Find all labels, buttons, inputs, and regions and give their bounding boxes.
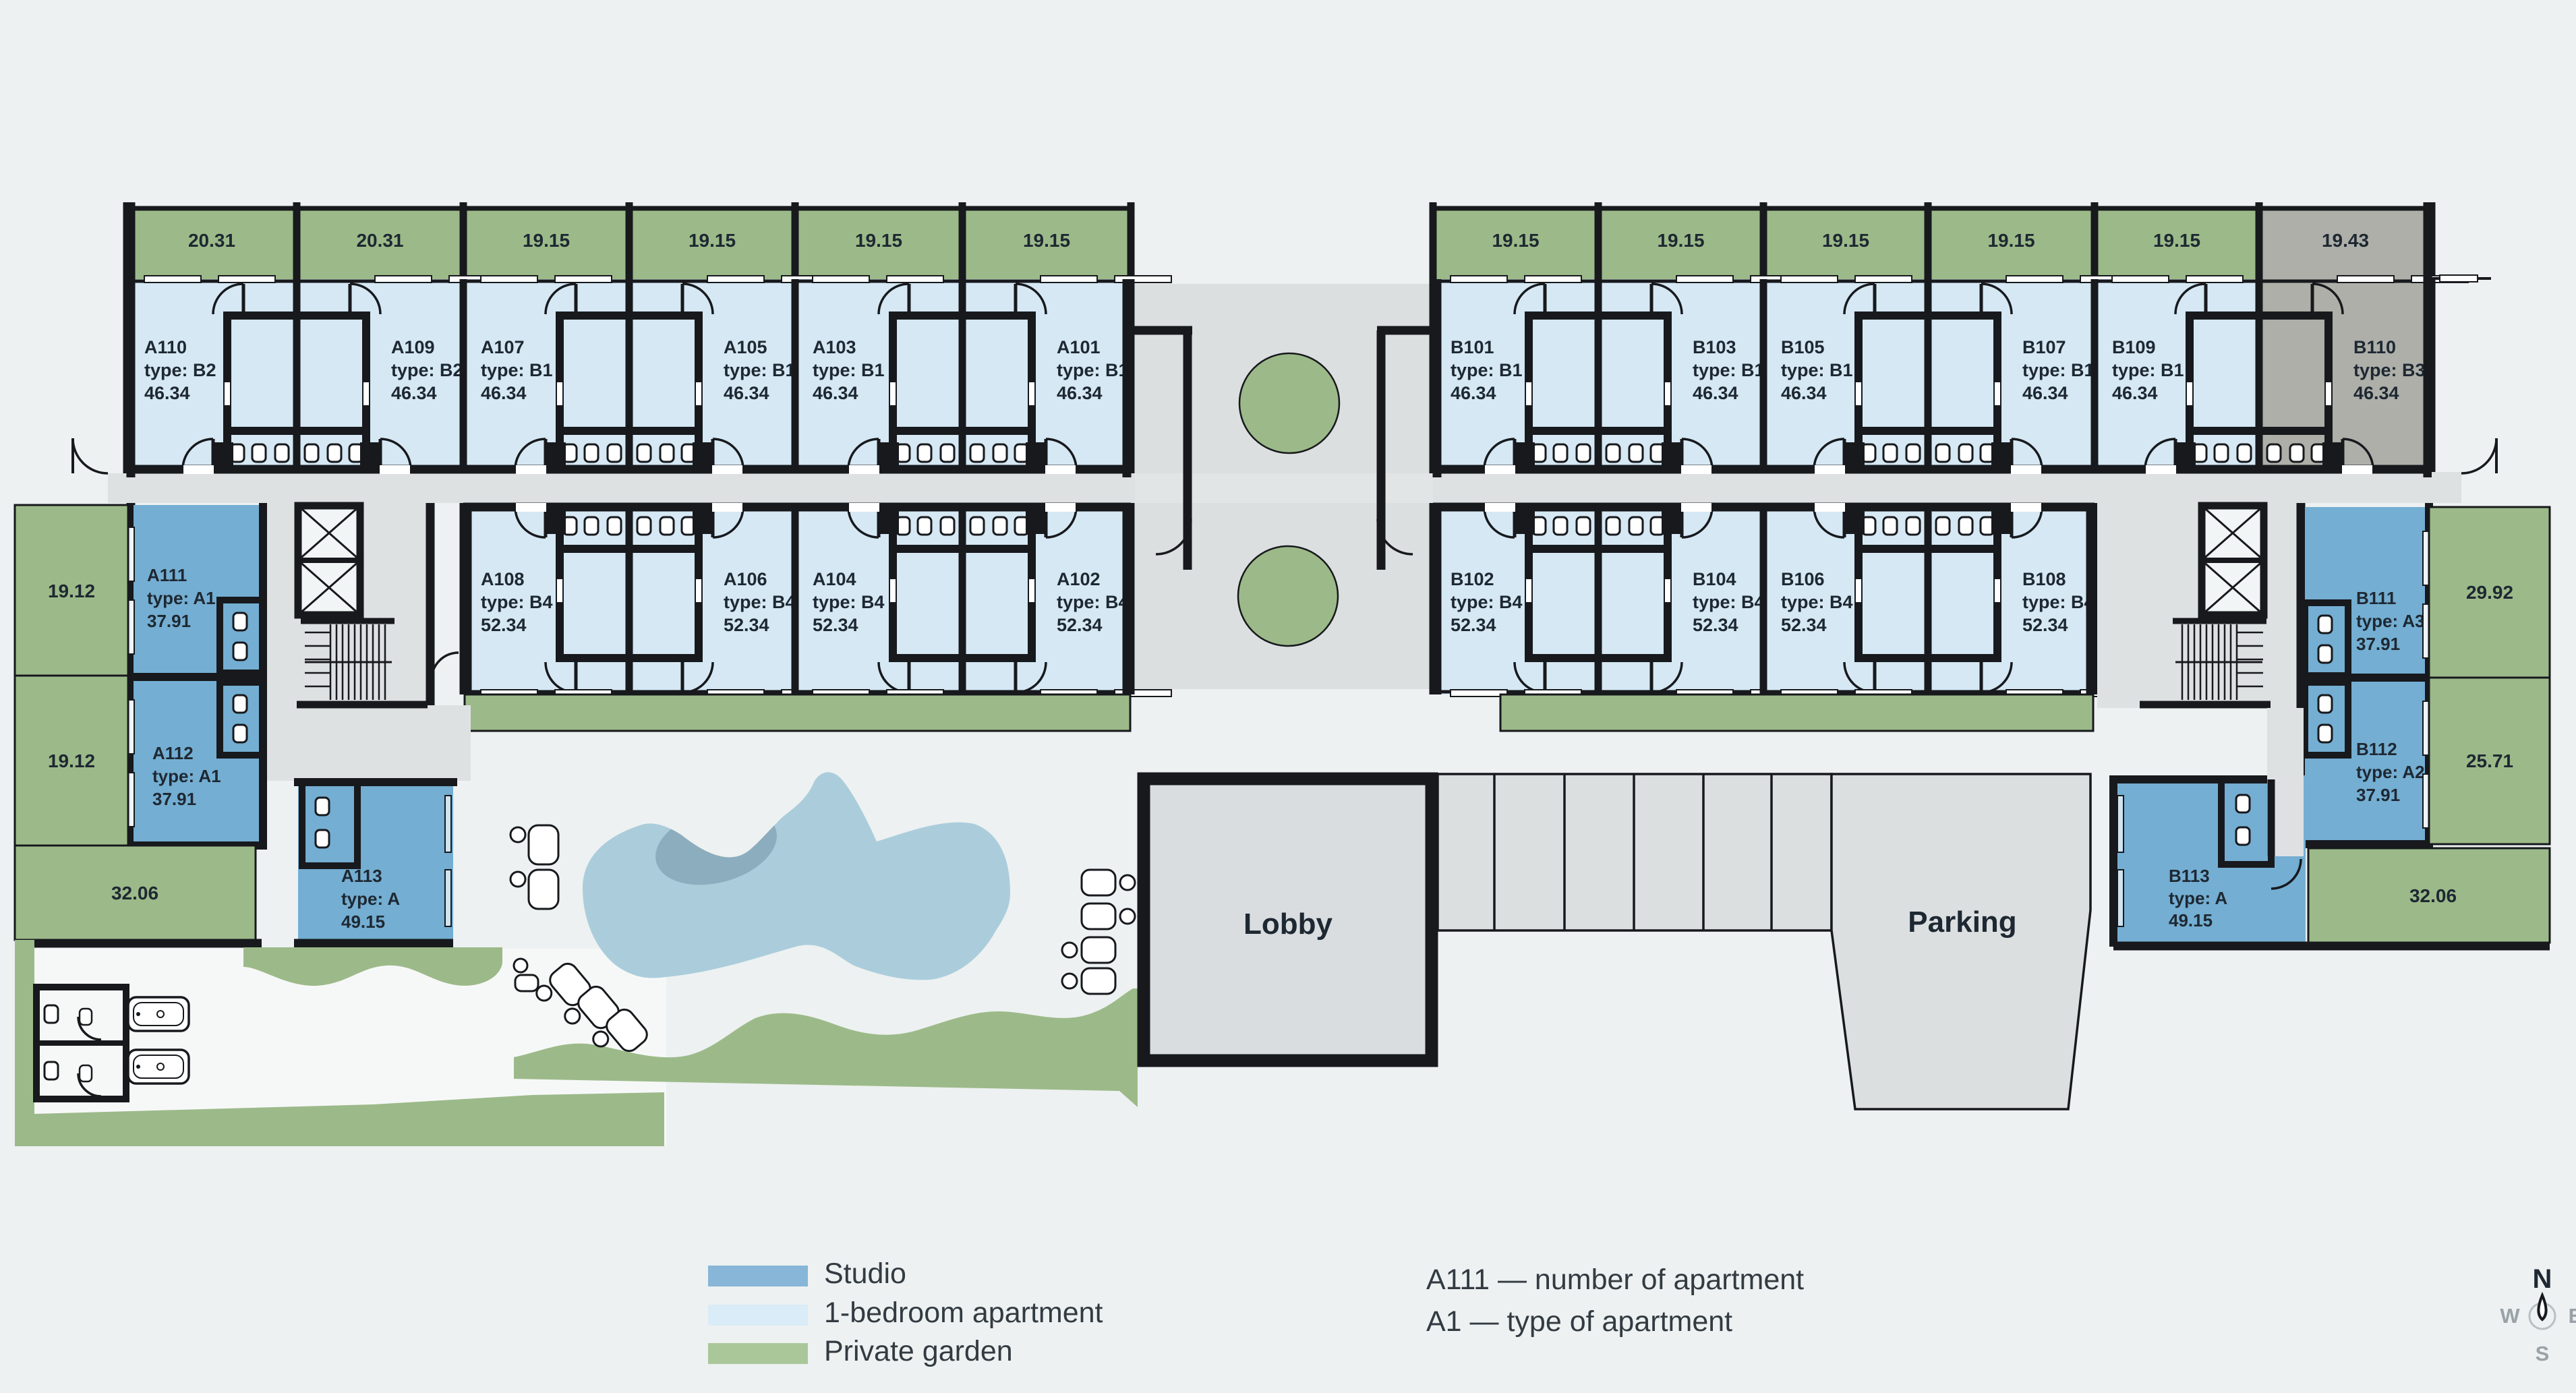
svg-text:46.34: 46.34 xyxy=(813,383,858,403)
svg-text:type: A2: type: A2 xyxy=(2356,762,2425,782)
svg-text:32.06: 32.06 xyxy=(111,883,158,903)
svg-text:52.34: 52.34 xyxy=(813,615,858,635)
svg-text:49.15: 49.15 xyxy=(2169,910,2213,930)
svg-text:46.34: 46.34 xyxy=(481,383,527,403)
svg-text:1-bedroom apartment: 1-bedroom apartment xyxy=(824,1297,1103,1329)
svg-text:type: B1: type: B1 xyxy=(2112,360,2184,380)
svg-text:A1 — type of apartment: A1 — type of apartment xyxy=(1426,1305,1732,1338)
svg-text:37.91: 37.91 xyxy=(152,789,196,809)
svg-text:46.34: 46.34 xyxy=(391,383,437,403)
svg-text:46.34: 46.34 xyxy=(2353,383,2399,403)
svg-text:type: B2: type: B2 xyxy=(144,360,216,380)
svg-text:46.34: 46.34 xyxy=(144,383,190,403)
svg-text:type: B4: type: B4 xyxy=(724,592,796,612)
svg-text:B108: B108 xyxy=(2022,569,2066,589)
svg-text:19.12: 19.12 xyxy=(48,581,95,601)
svg-text:B112: B112 xyxy=(2356,739,2397,759)
svg-text:type: B1: type: B1 xyxy=(1693,360,1765,380)
svg-text:type: B1: type: B1 xyxy=(724,360,796,380)
svg-text:N: N xyxy=(2533,1264,2552,1294)
svg-text:type: B4: type: B4 xyxy=(813,592,885,612)
svg-text:type: B1: type: B1 xyxy=(1451,360,1523,380)
svg-text:E: E xyxy=(2569,1304,2576,1328)
svg-text:Lobby: Lobby xyxy=(1243,908,1333,941)
svg-text:type: A1: type: A1 xyxy=(152,766,221,786)
svg-text:type: B1: type: B1 xyxy=(2022,360,2095,380)
svg-text:A108: A108 xyxy=(481,569,525,589)
svg-text:type: B1: type: B1 xyxy=(813,360,885,380)
svg-text:19.15: 19.15 xyxy=(689,230,736,251)
svg-text:52.34: 52.34 xyxy=(1781,615,1827,635)
svg-text:type: B4: type: B4 xyxy=(1693,592,1765,612)
svg-text:32.06: 32.06 xyxy=(2409,885,2457,906)
svg-text:46.34: 46.34 xyxy=(2022,383,2068,403)
svg-text:type: B2: type: B2 xyxy=(391,360,463,380)
svg-text:A107: A107 xyxy=(481,337,525,357)
svg-text:type: B1: type: B1 xyxy=(1781,360,1853,380)
svg-text:46.34: 46.34 xyxy=(1781,383,1827,403)
svg-text:S: S xyxy=(2536,1342,2550,1365)
svg-text:type: B1: type: B1 xyxy=(1057,360,1129,380)
svg-text:A109: A109 xyxy=(391,337,435,357)
svg-text:type: B4: type: B4 xyxy=(1451,592,1523,612)
svg-text:type: B4: type: B4 xyxy=(481,592,553,612)
svg-text:20.31: 20.31 xyxy=(188,230,235,251)
svg-text:52.34: 52.34 xyxy=(2022,615,2068,635)
svg-text:19.15: 19.15 xyxy=(1987,230,2035,251)
svg-text:19.15: 19.15 xyxy=(1023,230,1070,251)
svg-text:B102: B102 xyxy=(1451,569,1494,589)
svg-text:A103: A103 xyxy=(813,337,856,357)
svg-text:A111 — number of apartment: A111 — number of apartment xyxy=(1426,1264,1804,1296)
svg-text:B101: B101 xyxy=(1451,337,1494,357)
svg-text:A110: A110 xyxy=(144,337,187,357)
svg-text:A102: A102 xyxy=(1057,569,1101,589)
svg-text:A101: A101 xyxy=(1057,337,1101,357)
svg-text:52.34: 52.34 xyxy=(1057,615,1103,635)
svg-text:20.31: 20.31 xyxy=(356,230,403,251)
svg-text:B104: B104 xyxy=(1693,569,1736,589)
svg-text:19.15: 19.15 xyxy=(855,230,902,251)
svg-text:type: A1: type: A1 xyxy=(147,588,216,608)
svg-text:A112: A112 xyxy=(152,743,194,763)
svg-text:52.34: 52.34 xyxy=(724,615,769,635)
svg-text:46.34: 46.34 xyxy=(1451,383,1496,403)
svg-text:type: B4: type: B4 xyxy=(1781,592,1853,612)
svg-text:B109: B109 xyxy=(2112,337,2156,357)
svg-text:29.92: 29.92 xyxy=(2466,582,2513,603)
svg-text:19.12: 19.12 xyxy=(48,750,95,771)
svg-text:A104: A104 xyxy=(813,569,856,589)
svg-text:type: B4: type: B4 xyxy=(2022,592,2095,612)
svg-text:37.91: 37.91 xyxy=(2356,634,2400,654)
svg-text:B107: B107 xyxy=(2022,337,2066,357)
svg-text:type: A: type: A xyxy=(2169,888,2227,908)
svg-text:type: B1: type: B1 xyxy=(481,360,553,380)
svg-text:19.15: 19.15 xyxy=(1657,230,1704,251)
svg-text:19.15: 19.15 xyxy=(2153,230,2200,251)
svg-text:46.34: 46.34 xyxy=(724,383,769,403)
svg-text:46.34: 46.34 xyxy=(1057,383,1103,403)
svg-text:type: A3: type: A3 xyxy=(2356,611,2425,631)
svg-text:19.43: 19.43 xyxy=(2322,230,2369,251)
svg-text:B106: B106 xyxy=(1781,569,1825,589)
svg-text:A106: A106 xyxy=(724,569,767,589)
svg-text:52.34: 52.34 xyxy=(1451,615,1496,635)
svg-text:52.34: 52.34 xyxy=(1693,615,1738,635)
svg-text:19.15: 19.15 xyxy=(1822,230,1869,251)
svg-text:19.15: 19.15 xyxy=(1492,230,1539,251)
svg-text:type: A: type: A xyxy=(341,889,400,909)
svg-text:Studio: Studio xyxy=(824,1257,906,1290)
svg-text:type: B3: type: B3 xyxy=(2353,360,2426,380)
svg-text:37.91: 37.91 xyxy=(147,611,191,631)
svg-text:46.34: 46.34 xyxy=(1693,383,1738,403)
svg-text:46.34: 46.34 xyxy=(2112,383,2158,403)
svg-text:B111: B111 xyxy=(2356,588,2396,608)
svg-text:type: B4: type: B4 xyxy=(1057,592,1129,612)
svg-text:52.34: 52.34 xyxy=(481,615,527,635)
svg-text:37.91: 37.91 xyxy=(2356,785,2400,805)
svg-text:B113: B113 xyxy=(2169,866,2210,886)
svg-text:A105: A105 xyxy=(724,337,767,357)
svg-text:49.15: 49.15 xyxy=(341,912,385,932)
svg-text:19.15: 19.15 xyxy=(523,230,570,251)
svg-text:B103: B103 xyxy=(1693,337,1736,357)
svg-text:A111: A111 xyxy=(147,565,187,585)
svg-text:B110: B110 xyxy=(2353,337,2396,357)
svg-text:Private garden: Private garden xyxy=(824,1335,1013,1367)
svg-text:B105: B105 xyxy=(1781,337,1825,357)
svg-text:W: W xyxy=(2500,1304,2520,1328)
svg-text:Parking: Parking xyxy=(1908,906,2016,939)
svg-text:25.71: 25.71 xyxy=(2466,750,2513,771)
